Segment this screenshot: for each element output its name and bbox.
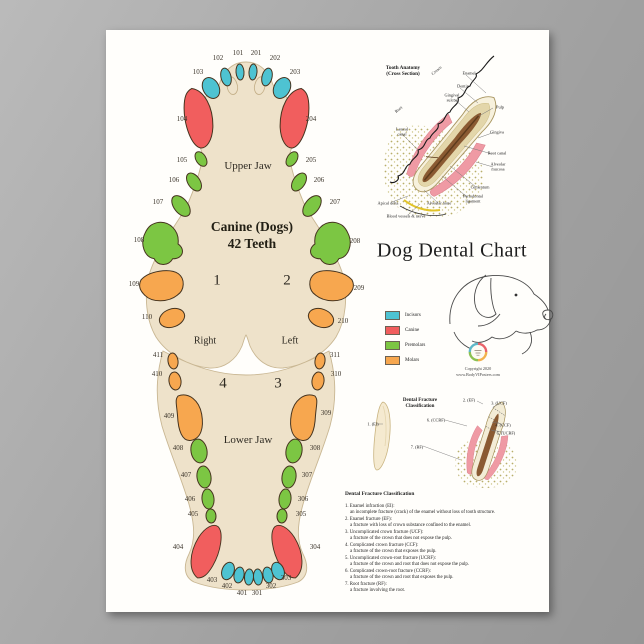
fracture-desc-7: a fracture involving the root. <box>345 588 547 594</box>
fracture-label-4: 4. (CCF) <box>495 423 510 428</box>
fracture-label-5: 5. (UCRF) <box>497 431 515 436</box>
fracture-label-1: 1. (EI) <box>367 422 378 427</box>
screenshot-root: { "poster": { "title": "Dog Dental Chart… <box>0 0 644 644</box>
fracture-text-heading: Dental Fracture Classification <box>345 491 547 497</box>
fracture-text-block: Dental Fracture Classification 1. Enamel… <box>345 491 547 595</box>
dog-dental-chart-poster: 1012011022021032031042041052051062061072… <box>106 30 549 612</box>
fracture-label-6: 6. (CCRF) <box>427 418 445 423</box>
fracture-label-2: 2. (EF) <box>463 398 475 403</box>
fracture-label-7: 7. (RF) <box>411 445 423 450</box>
fracture-label-3: 3. (UCF) <box>491 401 507 406</box>
